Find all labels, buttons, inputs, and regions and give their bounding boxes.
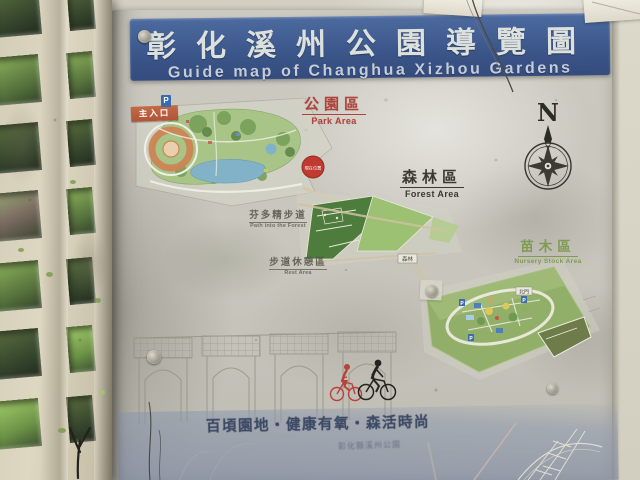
- fence-hole: [0, 0, 42, 38]
- moss-speck: [58, 428, 66, 433]
- trail-label: 芬多精步道: [249, 211, 307, 223]
- forest-area-label: 森林區: [400, 169, 464, 188]
- fence-hole: [66, 325, 96, 373]
- park-area-label: 公園區: [302, 96, 366, 115]
- sign-header-banner: 彰化溪州公園導覽圖 Guide map of Changhua Xizhou G…: [130, 13, 611, 81]
- park-area-label-group: 公園區 Park Area: [286, 96, 382, 127]
- moss-speck: [70, 180, 76, 184]
- nursery-area-label-en: Nursery Stock Area: [498, 258, 598, 265]
- fence-hole: [66, 187, 96, 235]
- moss-speck: [95, 298, 101, 303]
- forest-area-label-group: 森林區 Forest Area: [382, 169, 482, 200]
- forest-area-label-en: Forest Area: [382, 189, 482, 199]
- fence-hole: [66, 119, 96, 167]
- trail-label-en: Path into the Forest: [216, 223, 340, 229]
- nursery-area-label: 苗木區: [518, 239, 578, 257]
- rest-area-label: 步道休憩區: [269, 258, 327, 270]
- fence-hole: [0, 54, 42, 106]
- fence-hole: [0, 190, 42, 242]
- moss-speck: [18, 248, 24, 252]
- parking-icon: P: [161, 95, 171, 107]
- fence-hole: [0, 260, 42, 312]
- rest-area-label-group: 步道休憩區 Rest Area: [246, 252, 350, 277]
- moss-speck: [99, 390, 105, 395]
- rest-area-label-en: Rest Area: [246, 270, 350, 276]
- fence-hole: [0, 328, 42, 380]
- main-entrance-label: 主入口: [131, 105, 178, 122]
- moss-speck: [46, 272, 53, 277]
- bolt: [426, 285, 438, 297]
- fence-hole: [0, 398, 42, 450]
- fence-rail: [94, 0, 112, 480]
- bolt: [547, 383, 558, 394]
- bolt: [138, 30, 151, 43]
- park-area-label-en: Park Area: [286, 116, 382, 126]
- sign-title: 彰化溪州公園導覽圖: [130, 13, 611, 66]
- guide-map-sign-photo: 彰化溪州公園導覽圖 Guide map of Changhua Xizhou G…: [0, 0, 640, 480]
- nursery-area-label-group: 苗木區 Nursery Stock Area: [498, 239, 598, 265]
- fence-hole: [66, 0, 96, 31]
- fence-hole: [66, 51, 96, 99]
- fence-hole: [66, 257, 96, 305]
- fence-rail: [40, 0, 68, 480]
- trail-label-group: 芬多精步道 Path into the Forest: [216, 205, 340, 230]
- lattice-fence: [0, 0, 112, 480]
- bolt: [147, 350, 161, 364]
- fence-hole: [0, 122, 42, 174]
- tape: [583, 0, 640, 23]
- fence-hole: [66, 395, 96, 443]
